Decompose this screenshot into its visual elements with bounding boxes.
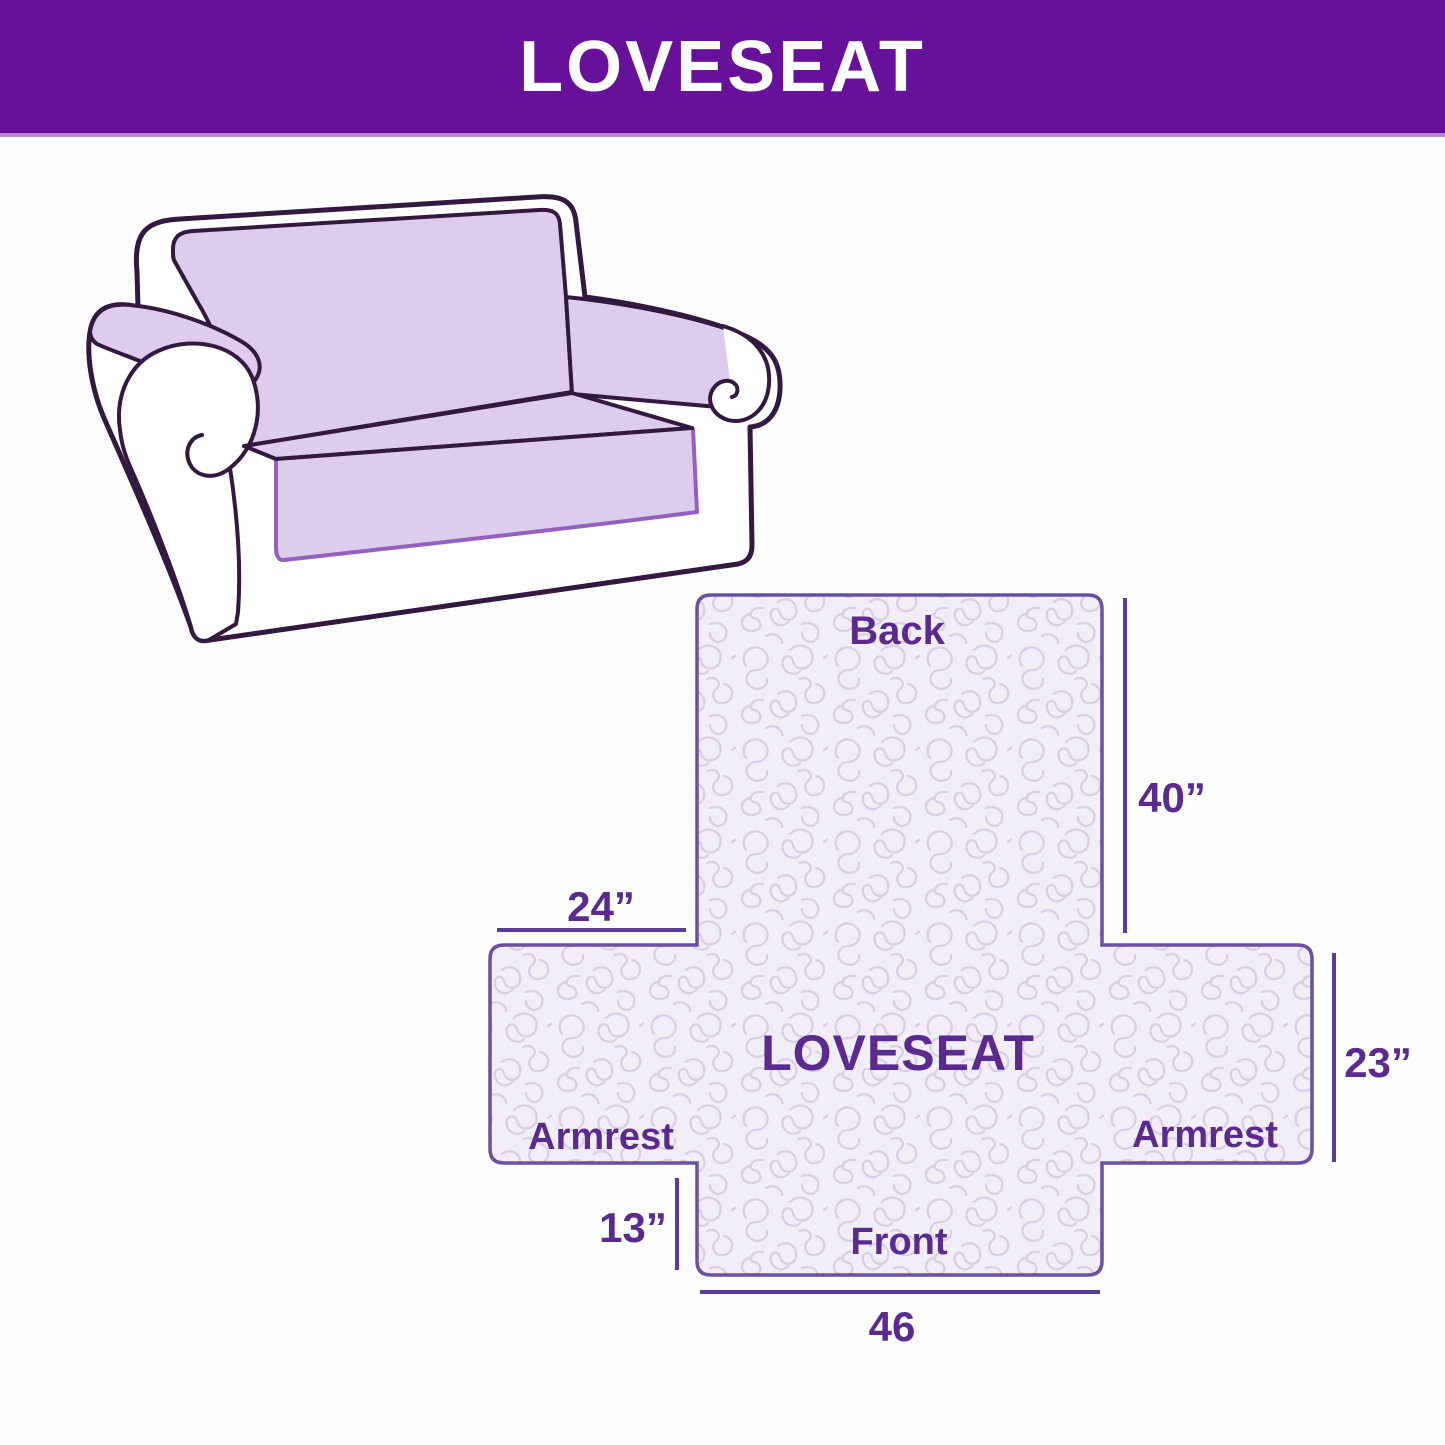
dim-front-drop: 13” — [599, 1204, 667, 1251]
label-back: Back — [849, 609, 945, 653]
dim-front-width: 46 — [869, 1303, 916, 1350]
label-armrest-right: Armrest — [1132, 1114, 1278, 1156]
dim-back-height: 40” — [1138, 774, 1206, 821]
size-diagram: Back LOVESEAT Armrest Armrest Front 40” … — [490, 595, 1412, 1350]
label-front: Front — [850, 1221, 947, 1263]
label-center-loveseat: LOVESEAT — [761, 1025, 1035, 1081]
cover-cross-shape — [490, 595, 1312, 1275]
label-armrest-left: Armrest — [528, 1116, 674, 1158]
sofa-illustration — [89, 197, 780, 641]
dim-armrest-height: 23” — [1344, 1039, 1412, 1086]
dim-back-side-width: 24” — [567, 883, 635, 930]
figure-canvas: Back LOVESEAT Armrest Armrest Front 40” … — [0, 0, 1445, 1445]
page: LOVESEAT — [0, 0, 1445, 1445]
